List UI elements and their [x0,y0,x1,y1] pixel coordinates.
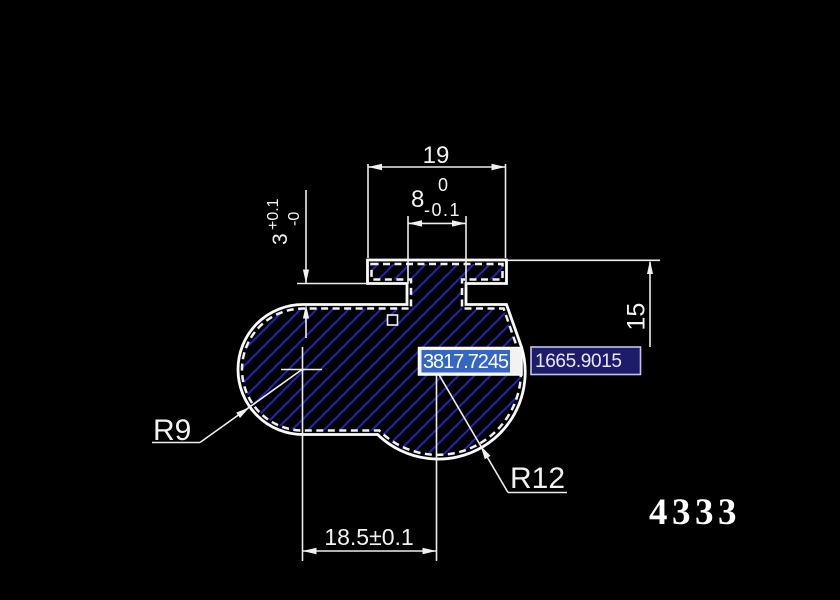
svg-text:3817.7245: 3817.7245 [423,351,509,373]
svg-text:19: 19 [423,142,450,169]
svg-text:8: 8 [411,186,424,213]
svg-text:15: 15 [623,303,651,331]
svg-text:3: 3 [269,233,292,245]
svg-text:+0.1: +0.1 [265,198,282,230]
svg-text:4333: 4333 [649,492,741,533]
svg-text:-0: -0 [286,212,303,226]
svg-text:R9: R9 [153,414,191,447]
svg-text:-0.1: -0.1 [424,200,461,220]
svg-text:0: 0 [438,175,448,195]
svg-text:18.5±0.1: 18.5±0.1 [324,524,413,550]
svg-text:R12: R12 [510,462,565,495]
svg-text:1665.9015: 1665.9015 [535,351,622,372]
